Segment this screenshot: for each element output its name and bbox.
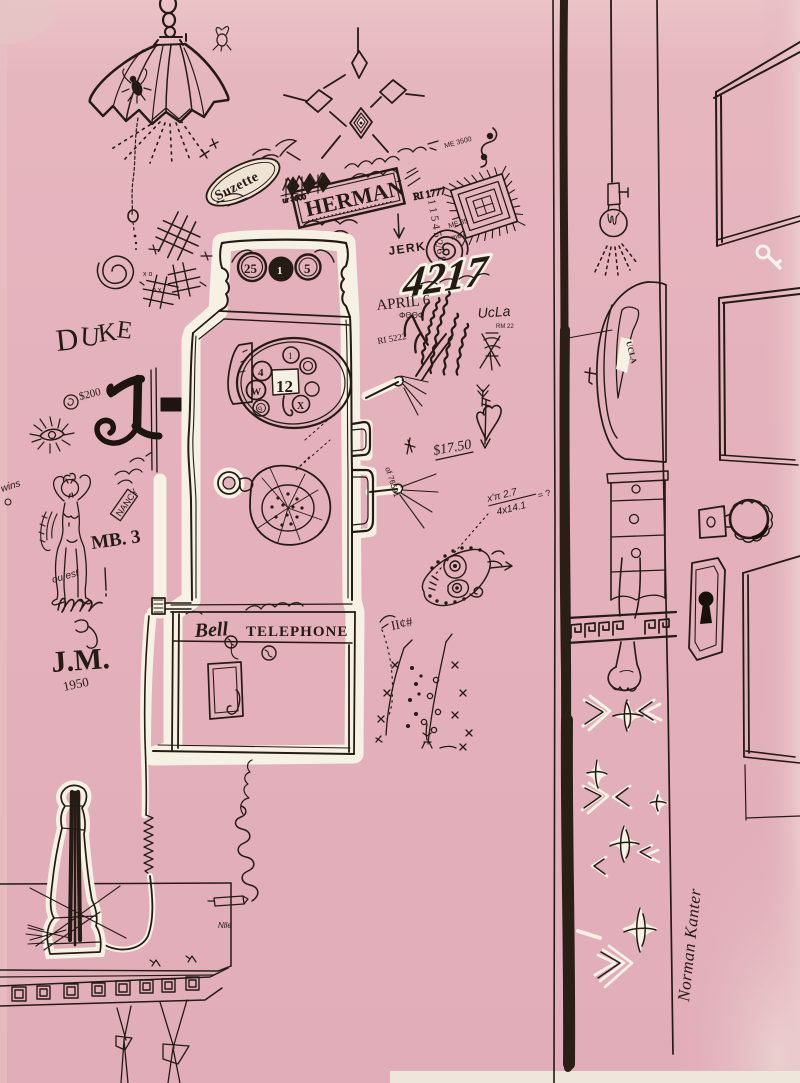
svg-text:Nlle: Nlle xyxy=(218,921,232,930)
svg-text:1: 1 xyxy=(288,351,293,361)
svg-text:1: 1 xyxy=(277,265,283,277)
svg-text:TELEPHONE: TELEPHONE xyxy=(246,624,348,640)
svg-text:o x: o x xyxy=(152,287,162,294)
svg-text:12: 12 xyxy=(276,377,293,396)
svg-text:X: X xyxy=(297,401,305,412)
svg-text:K: K xyxy=(96,317,118,348)
svg-text:4: 4 xyxy=(258,367,264,379)
svg-text:D: D xyxy=(54,321,80,358)
svg-text:Bell: Bell xyxy=(193,618,229,642)
svg-text:E: E xyxy=(115,316,133,345)
svg-text:J.M.: J.M. xyxy=(50,642,110,679)
svg-text:5: 5 xyxy=(304,261,311,276)
svg-text:RM 22: RM 22 xyxy=(496,324,514,330)
svg-text:25: 25 xyxy=(244,261,258,276)
svg-text:9: 9 xyxy=(258,405,262,414)
svg-text:UcLa: UcLa xyxy=(477,303,511,321)
svg-text:x o: x o xyxy=(143,271,152,278)
